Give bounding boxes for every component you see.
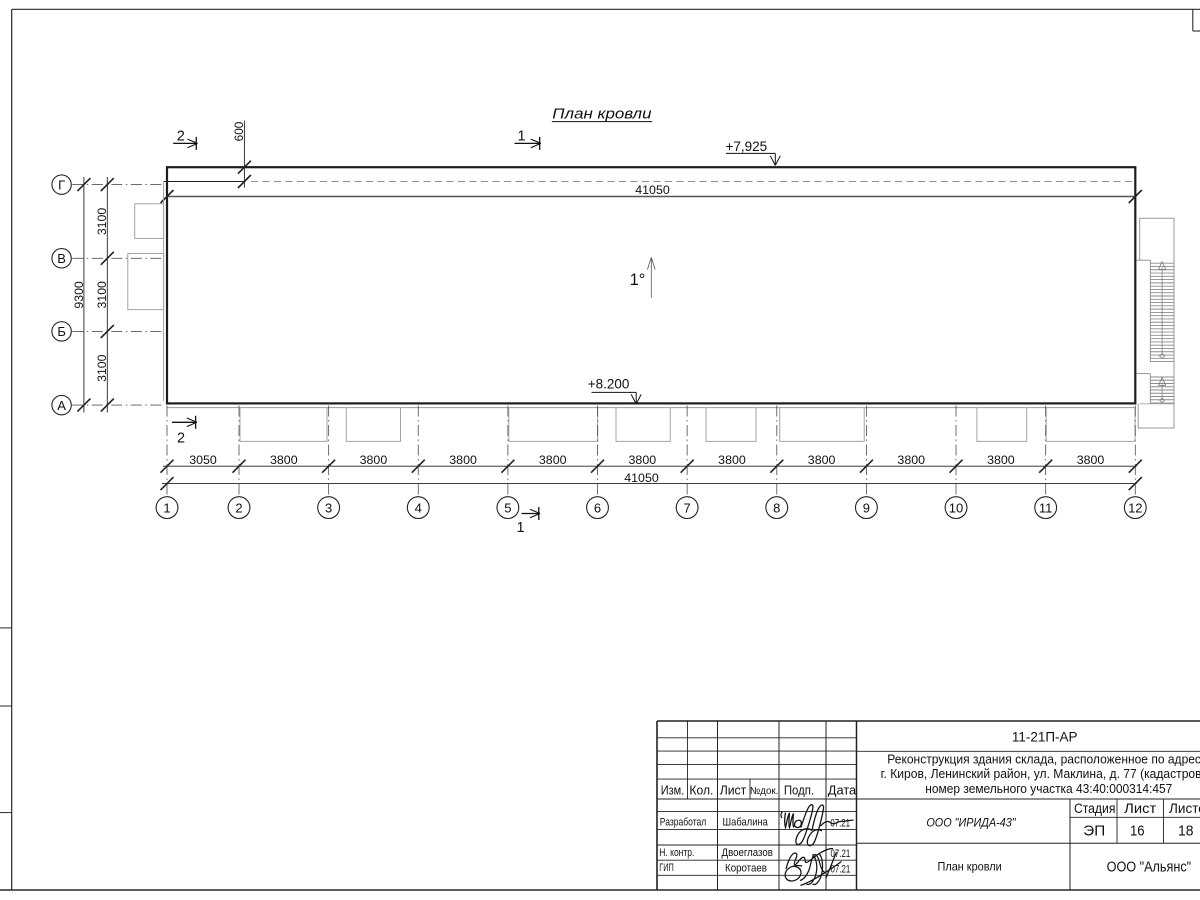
svg-text:10: 10: [949, 500, 963, 515]
svg-text:Н. контр.: Н. контр.: [659, 847, 694, 859]
svg-text:Кол.: Кол.: [689, 783, 713, 798]
svg-text:3050: 3050: [189, 453, 217, 467]
svg-text:12: 12: [1128, 500, 1142, 515]
svg-text:Реконструкция здания склада, р: Реконструкция здания склада, расположенн…: [887, 752, 1200, 767]
svg-text:+7,925: +7,925: [725, 139, 767, 154]
svg-text:1: 1: [517, 128, 525, 144]
svg-text:Лист: Лист: [1124, 801, 1156, 816]
svg-text:11-21П-АР: 11-21П-АР: [1012, 729, 1078, 744]
svg-text:План кровли: План кровли: [552, 106, 651, 122]
svg-text:3800: 3800: [897, 453, 925, 467]
svg-text:41050: 41050: [635, 183, 670, 197]
svg-text:3800: 3800: [808, 453, 836, 467]
svg-text:2: 2: [235, 500, 242, 515]
svg-text:г. Киров, Ленинский район, ул.: г. Киров, Ленинский район, ул. Маклина, …: [881, 766, 1200, 781]
svg-text:+8.200: +8.200: [588, 377, 630, 392]
svg-text:Дата: Дата: [828, 783, 857, 798]
svg-text:Стадия: Стадия: [1074, 801, 1116, 816]
svg-text:Шабалина: Шабалина: [723, 816, 769, 828]
svg-text:ООО "Альянс": ООО "Альянс": [1107, 859, 1192, 876]
svg-text:В: В: [57, 251, 66, 266]
svg-text:3800: 3800: [449, 453, 477, 467]
svg-text:ГИП: ГИП: [659, 862, 674, 874]
svg-text:3800: 3800: [987, 453, 1015, 467]
svg-text:2: 2: [177, 128, 185, 144]
svg-text:№док.: №док.: [750, 786, 778, 797]
svg-text:Б: Б: [57, 324, 66, 339]
svg-text:1: 1: [163, 500, 170, 515]
svg-text:3800: 3800: [270, 453, 298, 467]
svg-text:07.21: 07.21: [831, 863, 851, 875]
svg-text:18: 18: [1178, 823, 1194, 840]
svg-text:3800: 3800: [718, 453, 746, 467]
svg-text:3800: 3800: [629, 453, 657, 467]
svg-text:номер земельного участка 43:40: номер земельного участка 43:40:000314:45…: [925, 781, 1172, 796]
svg-text:9: 9: [863, 500, 870, 515]
svg-text:7: 7: [684, 500, 691, 515]
svg-text:А: А: [57, 398, 66, 413]
svg-text:9300: 9300: [72, 281, 86, 309]
svg-text:600: 600: [232, 121, 246, 141]
svg-text:Разработал: Разработал: [660, 816, 707, 828]
svg-text:План кровли: План кровли: [938, 859, 1002, 873]
svg-text:4: 4: [415, 500, 422, 515]
svg-text:Лист: Лист: [720, 783, 747, 798]
svg-text:5: 5: [504, 500, 511, 515]
svg-text:ЭП: ЭП: [1083, 823, 1105, 840]
svg-text:Г: Г: [58, 177, 65, 192]
svg-text:Коротаев: Коротаев: [725, 863, 767, 875]
svg-text:3800: 3800: [360, 453, 388, 467]
svg-text:Листов: Листов: [1169, 801, 1200, 816]
svg-text:8: 8: [773, 500, 780, 515]
svg-text:3: 3: [325, 500, 332, 515]
svg-text:3800: 3800: [539, 453, 567, 467]
svg-text:1: 1: [516, 520, 524, 536]
svg-text:Изм.: Изм.: [661, 783, 685, 798]
svg-text:Подп.: Подп.: [784, 783, 814, 798]
svg-text:41050: 41050: [624, 471, 659, 485]
svg-text:3100: 3100: [95, 208, 109, 236]
svg-text:ООО "ИРИДА-43": ООО "ИРИДА-43": [926, 815, 1016, 829]
svg-text:6: 6: [594, 500, 601, 515]
svg-text:1°: 1°: [630, 271, 646, 289]
svg-text:11: 11: [1039, 500, 1053, 515]
svg-text:3800: 3800: [1077, 453, 1105, 467]
svg-text:2: 2: [177, 431, 185, 447]
svg-text:Двоеглазов: Двоеглазов: [722, 847, 773, 859]
svg-text:16: 16: [1130, 823, 1145, 840]
svg-text:3100: 3100: [95, 281, 109, 309]
svg-text:3100: 3100: [95, 354, 109, 382]
